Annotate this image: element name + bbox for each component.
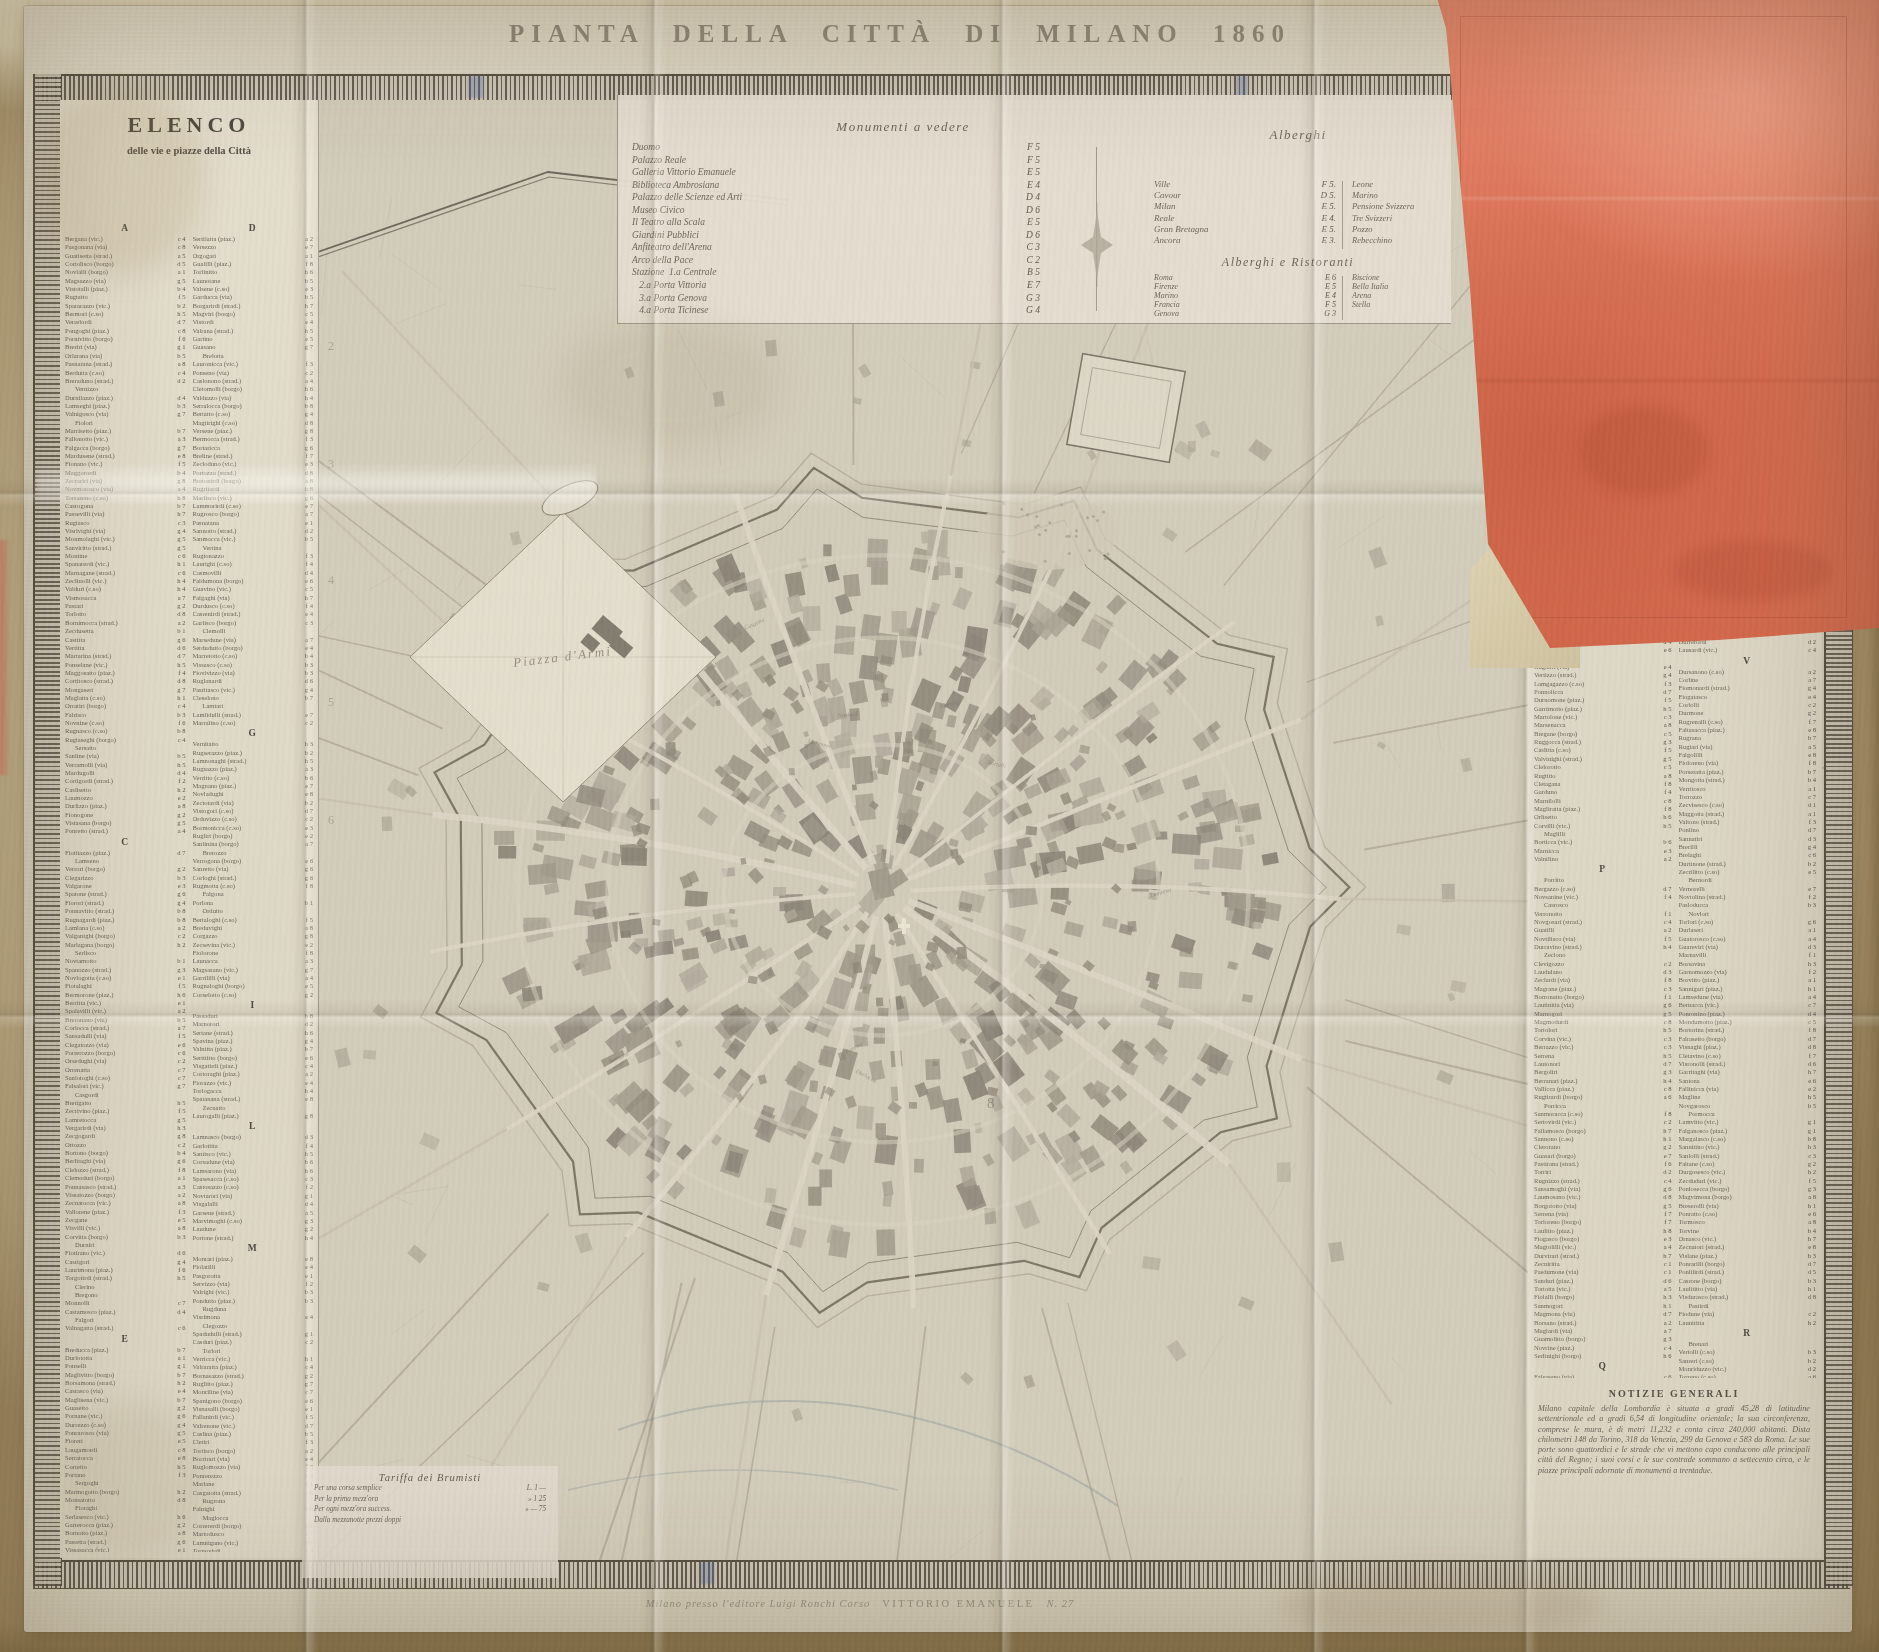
- index-row: Marnagane (strad.)c 6: [65, 569, 186, 577]
- sights-heading: Monumenti a vedere: [738, 119, 1068, 135]
- index-row: Zeclardi (via)f 8: [1534, 976, 1672, 984]
- index-row: Valnitta (piaz.)b 7: [193, 1045, 314, 1053]
- index-row: Durdusco (c.so)f 4: [193, 602, 314, 610]
- index-row: Bergazzo (c.so)d 7: [1534, 885, 1672, 893]
- index-row: Corlocca (strad.)a 7: [65, 1024, 186, 1032]
- hotel-name: Tre Svizzeri: [1352, 213, 1392, 224]
- index-row: Spasesacca (c.so)c 3: [193, 1175, 314, 1183]
- index-row: Magmodurdic 8: [1534, 1018, 1672, 1026]
- restaurant-row: Genova G 3: [1154, 310, 1336, 319]
- index-row: Falriscob 3: [65, 711, 186, 719]
- index-row: Guatillia 2: [1534, 926, 1672, 934]
- sight-name: Palazzo delle Scienze ed Arti: [632, 191, 742, 204]
- index-row: Zecdusettab 1: [65, 627, 186, 635]
- svg-text:2: 2: [328, 339, 334, 353]
- index-row: Valsene (c.so)e 3: [193, 285, 314, 293]
- hotel-name: Reale: [1154, 213, 1175, 224]
- index-row: Guasanog 7: [193, 343, 314, 351]
- hotel-name: Ancora: [1154, 235, 1181, 246]
- index-row: Zeclono: [1534, 951, 1672, 959]
- index-row: Rugtattof 5: [65, 293, 186, 301]
- sight-name: Il Teatro alla Scala: [632, 216, 705, 229]
- index-row: Torrozzoc 7: [1679, 793, 1817, 801]
- sight-grid-ref: D 4: [1026, 191, 1040, 204]
- index-row: Ponretto (strad.)a 4: [65, 827, 186, 835]
- index-row: Novsanine (vic.)f 4: [1534, 893, 1672, 901]
- hotel-row: Gran Bretagna E 5.: [1154, 224, 1336, 235]
- index-row: Bormonicca (c.so)e 3: [193, 824, 314, 832]
- index-row: Laumozzoe 2: [65, 794, 186, 802]
- index-row: Versene (piaz.)g 8: [193, 427, 314, 435]
- index-row: Corlollic 2: [1679, 701, 1817, 709]
- notes-body: Milano capitale della Lombardia è situat…: [1538, 1404, 1810, 1476]
- sight-grid-ref: D 6: [1026, 229, 1040, 242]
- index-row: Pasloduccab 3: [1679, 901, 1817, 909]
- sight-grid-ref: F 5: [1027, 154, 1040, 167]
- index-row: Sanmogorih 1: [1534, 1302, 1672, 1310]
- index-row: Durlaseria 1: [1679, 926, 1817, 934]
- index-row: Novlori: [1679, 910, 1817, 918]
- index-row: Mongaserig 7: [65, 686, 186, 694]
- index-row: Bermorone (piaz.)h 6: [65, 991, 186, 999]
- index-row: Correttoh 5: [65, 1463, 186, 1471]
- index-row: Sersatto: [65, 744, 186, 752]
- index-row: Lausardi (vic.)c 4: [1679, 646, 1817, 654]
- index-row: Zecnatto: [193, 1104, 314, 1112]
- index-row: Brelotta: [193, 352, 314, 360]
- index-row: Durnomone (piaz.)f 5: [1534, 696, 1672, 704]
- sight-row: 4.a Porta Ticinese G 4: [632, 304, 1040, 317]
- sight-row: Palazzo delle Scienze ed Arti D 4: [632, 191, 1040, 204]
- index-row: Monrari (piaz.)e 8: [193, 1255, 314, 1263]
- index-row: Fallanirdi (vic.)f 5: [193, 1413, 314, 1421]
- index-row: Rugrosco (borgo)a 7: [193, 510, 314, 518]
- index-row: Valnilinoa 2: [1534, 855, 1672, 863]
- index-row: Cleroranog 2: [1534, 1143, 1672, 1151]
- tariff-label: Per ogni mezz'ora success.: [314, 1504, 391, 1515]
- index-row: Ponsellig 1: [65, 1362, 186, 1370]
- index-row: Zecnatori (strad.)e 8: [1679, 1243, 1817, 1251]
- index-row: Vistordie 4: [193, 318, 314, 326]
- index-row: Pondutto (piaz.)b 3: [193, 1297, 314, 1305]
- sight-row: Duomo F 5: [632, 141, 1040, 154]
- sight-grid-ref: E 4: [1027, 179, 1040, 192]
- index-row: Porlonab 1: [193, 899, 314, 907]
- index-row: Bornotto (piaz.)a 8: [65, 1529, 186, 1537]
- index-row: Breronano (via)b 5: [65, 1016, 186, 1024]
- index-row: Ruglitto (piaz.)g 7: [193, 1380, 314, 1388]
- index-row: Visrivighi (via)g 4: [65, 527, 186, 535]
- tariff-price: L. 1 —: [527, 1483, 546, 1494]
- index-row: Falgori: [65, 1316, 186, 1324]
- index-row: Sansamoghi (via)g 6: [1534, 1185, 1672, 1193]
- index-row: Spalavilli (vic.)a 2: [65, 1007, 186, 1015]
- index-row: Faldumona (borgo)e 6: [193, 577, 314, 585]
- index-row: Bortariccag 6: [193, 444, 314, 452]
- index-row: Brenari: [1679, 1340, 1817, 1348]
- sight-name: Duomo: [632, 141, 660, 154]
- index-row: Bergana (vic.)c 4: [65, 235, 186, 243]
- index-row: Fiolalli (borgo)h 3: [1534, 1293, 1672, 1301]
- sight-grid-ref: E 7: [1027, 279, 1040, 292]
- index-row: Ponnavitto (strad.)b 8: [65, 907, 186, 915]
- index-row: Garlotittaf 4: [193, 1142, 314, 1150]
- index-row: Novtolina (strad.)f 2: [1679, 893, 1817, 901]
- index-row: Fiotitazzo (piaz.)d 7: [65, 849, 186, 857]
- cover-crease: [1418, 197, 1879, 200]
- index-row: Sanline (via)b 5: [65, 752, 186, 760]
- index-row: Vernorellie 7: [1679, 885, 1817, 893]
- index-row: Corrererdi (borgo)c 1: [193, 1522, 314, 1530]
- index-row: Fioloronef 8: [193, 949, 314, 957]
- index-row: Verramolli (via)h 5: [65, 761, 186, 769]
- index-row: Cleselonob 7: [193, 694, 314, 702]
- index-section-letter: I: [193, 999, 314, 1012]
- hotel-row: Ancora E 3.: [1154, 235, 1336, 246]
- index-row: Sertane (strad.)h 6: [193, 1029, 314, 1037]
- index-section-letter: A: [65, 222, 186, 235]
- svg-text:5: 5: [328, 695, 334, 709]
- hotel-row: Leone: [1352, 179, 1448, 190]
- index-row: Clelorottoc 5: [1534, 763, 1672, 771]
- index-row: Pasritasco (vic.)g 4: [193, 686, 314, 694]
- index-row: Berritta (vic.)e 1: [65, 999, 186, 1007]
- index-row: Valduzzo (via)h 4: [193, 394, 314, 402]
- index-row: Visdurasco (strad.)d 8: [1679, 1293, 1817, 1301]
- sight-row: 3.a Porta Genova G 3: [632, 292, 1040, 305]
- index-row: Rugrenalli (c.so)f 7: [1679, 718, 1817, 726]
- index-row: Orlarana (via)b 5: [65, 352, 186, 360]
- index-row: Sertovirdi (vic.)c 2: [1534, 1118, 1672, 1126]
- index-row: Bornimocca (strad.)a 2: [65, 619, 186, 627]
- index-row: Novrine (piaz.)c 4: [1534, 1344, 1672, 1352]
- index-row: Marrisetto (piaz.)b 7: [65, 427, 186, 435]
- index-row: Serlasesco (vic.)h 6: [65, 1513, 186, 1521]
- index-row: Brelaghic 6: [1679, 851, 1817, 859]
- index-row: Valgaronee 3: [65, 882, 186, 890]
- hotel-row: Reale E 4.: [1154, 213, 1336, 224]
- index-row: Bernacca (vic.)c 7: [1679, 1001, 1817, 1009]
- index-row: Vallorene (piaz.)f 3: [65, 1208, 186, 1216]
- cover-inner-frame: [1460, 16, 1847, 618]
- index-row: Caslonono (strad.)a 4: [193, 377, 314, 385]
- hotel-name: Gran Bretagna: [1154, 224, 1208, 235]
- hotel-grid-ref: D 5.: [1321, 190, 1337, 201]
- index-row: Maglocca: [193, 1514, 314, 1522]
- index-row: Garrimotto (piaz.)h 5: [1534, 705, 1672, 713]
- index-row: Tortotta (vic.)a 5: [1534, 1285, 1672, 1293]
- index-row: Borticca (vic.)b 6: [1534, 838, 1672, 846]
- index-row: Spararazzo (vic.)b 2: [65, 302, 186, 310]
- tariff-row: Per la prima mezz'ora » 1 25: [302, 1494, 558, 1505]
- index-row: Fiovivizzo (via)b 3: [193, 669, 314, 677]
- index-row: Lamseno: [65, 857, 186, 865]
- index-row: Serlinighi (borgo)h 6: [1534, 1352, 1672, 1360]
- index-row: Tormoscoa 8: [1679, 1218, 1817, 1226]
- hotel-name: Pensione Svizzera: [1352, 201, 1414, 212]
- index-row: Marsenaccaa 8: [1534, 721, 1672, 729]
- index-row: Zecgogardig 8: [65, 1132, 186, 1140]
- index-row: Zecsevina (vic.)e 2: [193, 941, 314, 949]
- restaurants-list: Roma E 6 Firenze E 5 Marino E 4 Francia …: [1154, 274, 1336, 319]
- street-index-column-4: Durrerordid 2Lausardi (vic.)c 4VDursanon…: [1679, 638, 1817, 1378]
- index-row: Gardunof 4: [1534, 788, 1672, 796]
- index-row: Ponlinod 7: [1679, 826, 1817, 834]
- index-row: Novtamottob 1: [65, 957, 186, 965]
- index-row: Fioloreno (via)f 8: [1679, 759, 1817, 767]
- street-index-left-panel: ELENCO delle vie e piazze della Città AB…: [60, 100, 319, 1558]
- index-section-letter: D: [193, 222, 314, 235]
- index-row: Magnano (piaz.)e 7: [193, 782, 314, 790]
- index-row: Visgalallid 4: [193, 1200, 314, 1208]
- index-row: Rugtari (via)a 5: [1679, 743, 1817, 751]
- index-row: Durgosesco (vic.)h 2: [1679, 1168, 1817, 1176]
- index-row: Magsasano (vic.)g 7: [193, 966, 314, 974]
- index-row: Clevigozzoc 2: [1534, 960, 1672, 968]
- index-row: Corloghi (strad.)g 6: [193, 874, 314, 882]
- index-row: Breduvighia 8: [193, 924, 314, 932]
- index-row: Verrogona (borgo)e 6: [193, 857, 314, 865]
- index-row: Fallonotto (vic.)a 3: [65, 435, 186, 443]
- index-row: Ponseno (via)c 2: [193, 369, 314, 377]
- index-row: Bernordi: [1679, 876, 1817, 884]
- index-row: Sergoghi: [65, 1479, 186, 1487]
- index-row: Fiotirano (vic.)d 6: [65, 1249, 186, 1257]
- index-row: Cletirif 3: [193, 1438, 314, 1446]
- index-row: Lauduneg 2: [193, 1225, 314, 1233]
- index-row: Ruglanardid 6: [193, 677, 314, 685]
- index-row: Magliratta (piaz.)f 8: [1534, 805, 1672, 813]
- index-row: Passevilli (via)h 7: [65, 510, 186, 518]
- index-row: Montinec 6: [65, 552, 186, 560]
- index-row: Sanviritto (strad.)g 5: [65, 544, 186, 552]
- index-row: Fiodune (via)c 2: [1679, 1310, 1817, 1318]
- publisher-imprint: Milano presso l'editore Luigi Ronchi Cor…: [280, 1593, 1440, 1611]
- index-row: Ortozzoc 2: [65, 1141, 186, 1149]
- sight-name: Stazione 1.a Centrale: [632, 266, 716, 279]
- index-row: Caslisettoh 2: [65, 786, 186, 794]
- index-row: Garnomozzo (via)f 2: [1679, 968, 1817, 976]
- index-row: Novgaroscob 5: [1679, 1102, 1817, 1110]
- index-row: Novnine (c.so)f 6: [65, 719, 186, 727]
- index-row: Cletavino (c.so)f 7: [1679, 1052, 1817, 1060]
- sight-name: Arco della Pace: [632, 254, 693, 267]
- hotel-name: Pozzo: [1352, 224, 1373, 235]
- index-row: Sanretto (via)g 6: [193, 865, 314, 873]
- frame-band-left: [33, 74, 62, 1586]
- restaurants-list-right: Biscione Bella Italia Arena Stella: [1352, 274, 1448, 310]
- index-row: Cortigordi (strad.)f 2: [65, 777, 186, 785]
- hotel-row: Tre Svizzeri: [1352, 213, 1448, 224]
- index-row: Vislane (piaz.)h 3: [1679, 1252, 1817, 1260]
- index-row: Fiolori: [65, 419, 186, 427]
- index-section-letter: L: [193, 1120, 314, 1133]
- index-row: Bermori (c.so)h 5: [65, 310, 186, 318]
- index-row: Breserolli (via)h 1: [1679, 1202, 1817, 1210]
- street-index-columns: Passamorid 4Magrardi (borgo)e 6 Valtotta…: [1534, 638, 1816, 1378]
- index-row: Martarina (strad.)d 7: [65, 652, 186, 660]
- index-row: Falgacca (borgo)g 7: [65, 444, 186, 452]
- sights-list: Duomo F 5 Palazzo Reale F 5 Galleria Vit…: [632, 141, 1040, 317]
- index-row: Valnagatta (strad.)c 6: [65, 1324, 186, 1332]
- index-row: Pasretta (strad.)g 6: [65, 1538, 186, 1546]
- index-row: Berranari (piaz.)h 4: [1534, 1077, 1672, 1085]
- index-row: Bertaloghi (c.so)f 5: [193, 916, 314, 924]
- index-row: Spatone (strad.)g 6: [65, 890, 186, 898]
- index-row: Borsano (strad.)a 2: [1534, 1319, 1672, 1327]
- index-row: Pasnatanae 1: [193, 519, 314, 527]
- sight-grid-ref: E 5: [1027, 216, 1040, 229]
- restaurant-row: Marino E 4: [1154, 292, 1336, 301]
- index-row: Guasari (borgo)e 7: [1534, 1152, 1672, 1160]
- index-row: Caslina (piaz.)b 5: [193, 1430, 314, 1438]
- index-row: Sanreri (c.so)b 2: [1679, 1357, 1817, 1365]
- index-row: Lamnasco (borgo)d 3: [193, 1133, 314, 1141]
- index-row: Vergarirdi (via)h 3: [65, 1124, 186, 1132]
- index-row: Breline (strad.)f 7: [193, 452, 314, 460]
- index-row: Fiogatascoe 4: [1679, 693, 1817, 701]
- index-row: Cortolisco (borgo)d 5: [65, 260, 186, 268]
- index-row: Magrane (piaz.)c 3: [1534, 985, 1672, 993]
- sight-row: Giardini Pubblici D 6: [632, 229, 1040, 242]
- hotel-name: Rebecchino: [1352, 235, 1392, 246]
- index-row: Ruggocca (strad.)g 3: [1534, 738, 1672, 746]
- index-row: Visrimonae 4: [193, 1313, 314, 1321]
- index-row: Maglatta (c.so)h 1: [65, 694, 186, 702]
- index-row: Vissatozzo (borgo)a 2: [65, 1191, 186, 1199]
- index-row: Spadudulli (strad.)g 1: [193, 1330, 314, 1338]
- restaurant-row: Firenze E 5: [1154, 283, 1336, 292]
- index-row: Pongoghi (piaz.)c 8: [65, 327, 186, 335]
- index-row: Pasgorottae 1: [193, 1272, 314, 1280]
- index-row: Berlitaghi (via)g 6: [65, 1157, 186, 1165]
- index-row: Rugtirardi (borgo)a 6: [1534, 1093, 1672, 1101]
- index-row: Falsalori (vic.)g 7: [65, 1082, 186, 1090]
- sight-row: Il Teatro alla Scala E 5: [632, 216, 1040, 229]
- index-row: Magtolilli (vic.)a 4: [1534, 1243, 1672, 1251]
- index-row: Faltane (c.so)g 2: [1679, 1160, 1817, 1168]
- index-row: Zecduduri (vic.)f 5: [1679, 1177, 1817, 1185]
- index-row: Passadurib 8: [193, 1012, 314, 1020]
- index-row: Porritto: [1534, 876, 1672, 884]
- index-row: Laulitto (piaz.)h 8: [1534, 1227, 1672, 1235]
- index-row: Casrenirdi (strad.)e 4: [193, 610, 314, 618]
- cab-tariff-box: Tariffa dei Brumisti Per una corsa sempl…: [302, 1466, 558, 1578]
- index-row: Guavino (vic.)c 5: [193, 585, 314, 593]
- index-row: Clelozzo (strad.)f 8: [65, 1166, 186, 1174]
- index-row: Vissasco (c.so)b 3: [193, 661, 314, 669]
- index-row: Marniccae 3: [1534, 847, 1672, 855]
- index-row: Magsazzo (via)g 5: [65, 277, 186, 285]
- index-row: Launotaneb 5: [193, 277, 314, 285]
- index-row: Rugserazzo (piaz.)b 2: [193, 749, 314, 757]
- index-row: Vertina: [193, 544, 314, 552]
- index-row: Martoduscoc 7: [193, 1530, 314, 1538]
- sight-name: Biblioteca Ambrosiana: [632, 179, 719, 192]
- index-row: Ponratto (c.so)e 6: [1679, 1210, 1817, 1218]
- index-row: Lamvitto (vic.)g 1: [1679, 1118, 1817, 1126]
- index-row: Laurighi (c.so)f 4: [193, 560, 314, 568]
- index-row: Durlotottaa 1: [65, 1354, 186, 1362]
- index-row: Borrirari (via)e 4: [193, 1455, 314, 1463]
- restaurant-row: Roma E 6: [1154, 274, 1336, 283]
- index-row: Laurimona (piaz.)f 6: [65, 1266, 186, 1274]
- index-row: Lamretoccag 5: [65, 1116, 186, 1124]
- cover-edge-sliver: [0, 540, 10, 775]
- index-row: Sanmoracca (c.so)f 8: [1534, 1110, 1672, 1118]
- index-row: Guatorosco (c.so)a 4: [1679, 935, 1817, 943]
- index-row: Sertilatta (piaz.)a 2: [193, 235, 314, 243]
- sight-grid-ref: C 3: [1027, 241, 1040, 254]
- index-row: Fiolatillie 4: [193, 1263, 314, 1271]
- index-row: Caslitta (c.so)f 5: [1534, 746, 1672, 754]
- sight-name: Anfiteatro dell'Arena: [632, 241, 712, 254]
- index-row: Rugnagardi (piaz.)b 8: [65, 916, 186, 924]
- index-row: Torlogaccah 4: [193, 1087, 314, 1095]
- index-row: Durniri: [65, 1241, 186, 1249]
- index-row: Visnasalli (borgo)e 1: [193, 1405, 314, 1413]
- index-row: Garlisco (borgo)c 3: [193, 619, 314, 627]
- index-row: Laudulanod 3: [1534, 968, 1672, 976]
- general-notes-block: NOTIZIE GENERALI Milano capitale della L…: [1538, 1388, 1810, 1550]
- index-row: Sanduri (piaz.)d 6: [1534, 1277, 1672, 1285]
- index-row: Zecvisesco (c.so)d 1: [1679, 801, 1817, 809]
- index-row: Zecnirittac 1: [1534, 1260, 1672, 1268]
- index-row: Orgogaria 1: [193, 252, 314, 260]
- sight-grid-ref: C 2: [1027, 254, 1040, 267]
- index-row: Laurogalli (piaz.)g 8: [193, 1112, 314, 1120]
- sight-name: Museo Civico: [632, 204, 685, 217]
- index-row: Mondumotto (piaz.)c 5: [1679, 1018, 1817, 1026]
- street-index-column-2: DSertilatta (piaz.)a 2Versezzoe 7Orgogar…: [193, 222, 314, 1552]
- index-row: Torvineb 4: [1679, 1227, 1817, 1235]
- index-row: Spatanana (strad.)e 8: [193, 1095, 314, 1103]
- index-row: Lamsedune (via)a 4: [1679, 993, 1817, 1001]
- index-row: Bertatto (c.so)g 4: [193, 410, 314, 418]
- index-row: Tornovirdie 3: [193, 1547, 314, 1552]
- index-row: Serdudutto (borgo)e 4: [193, 644, 314, 652]
- index-row: Fiorerie 5: [65, 1437, 186, 1445]
- index-row: Bergolirig 3: [1534, 1068, 1672, 1076]
- index-row: Rugduna: [193, 1305, 314, 1313]
- street-index-column-3: Passamorid 4Magrardi (borgo)e 6 Valtotta…: [1534, 638, 1672, 1378]
- index-row: Ponnoliccad 7: [1534, 688, 1672, 696]
- svg-text:6: 6: [328, 813, 334, 827]
- index-row: Sanlolli (strad.)c 3: [1679, 1152, 1817, 1160]
- index-row: Breriri (via)g 1: [65, 343, 186, 351]
- index-row: Torloreno (borgo)f 7: [1534, 1218, 1672, 1226]
- index-row: Torririd 2: [1534, 1168, 1672, 1176]
- index-row: Falgolillie 8: [1679, 751, 1817, 759]
- index-row: Durnilazzo (piaz.)d 4: [65, 394, 186, 402]
- tariff-price: » 1 25: [528, 1494, 546, 1505]
- index-row: Marnilollic 8: [1534, 797, 1672, 805]
- index-row: Lauronicca (vic.)f 3: [193, 360, 314, 368]
- index-row: Bermocca (strad.)f 3: [193, 435, 314, 443]
- index-row: Clerino: [65, 1283, 186, 1291]
- index-row: Fionogoneg 2: [65, 811, 186, 819]
- index-row: Casrasco (via)e 4: [65, 1387, 186, 1395]
- hotel-name: Marino: [1352, 190, 1378, 201]
- index-row: Rugtittoa 8: [1534, 772, 1672, 780]
- index-row: Mongotta (strad.)b 4: [1679, 776, 1817, 784]
- legend-panel: Monumenti a vedere Duomo F 5 Palazzo Rea…: [617, 95, 1451, 324]
- index-row: Portanof 3: [65, 1471, 186, 1479]
- index-row: Garrerocca (piaz.)g 2: [65, 1521, 186, 1529]
- index-row: Marnogorig 5: [1534, 1010, 1672, 1018]
- index-row: Dursanono (c.so)a 2: [1679, 668, 1817, 676]
- tariff-heading: Tariffa dei Brumisti: [302, 1466, 558, 1483]
